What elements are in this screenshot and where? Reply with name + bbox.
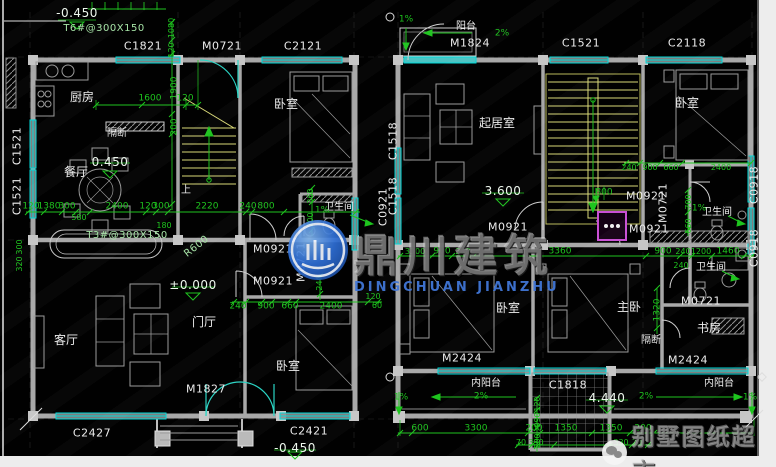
tag-label-5: C2118 (668, 38, 706, 49)
room-label-14: 卧室 (496, 302, 520, 314)
dim-label-2: 1080 (168, 18, 176, 38)
dim-label-45: 1320 (654, 299, 663, 322)
tag-label-26: C1818 (549, 380, 587, 391)
tag-label-3: M1824 (450, 38, 490, 49)
room-label-5: 客厅 (54, 334, 78, 346)
dim-label-40: 900 (654, 248, 671, 257)
room-label-0: 厨房 (70, 91, 94, 103)
tag-label-21: M1827 (186, 384, 226, 395)
tag-label-23: C2421 (290, 426, 328, 437)
dim-label-21: 660 (281, 303, 298, 312)
dim-label-37: 900 (433, 248, 450, 257)
room-label-6: 门厅 (192, 316, 216, 328)
dim-label-39: 3360 (549, 248, 572, 257)
room-label-11: 卧室 (675, 97, 699, 109)
top-dim-ticks (88, 2, 166, 10)
room-label-12: 卫生间 (702, 208, 732, 218)
elev-label-5: -0.450 (274, 442, 316, 454)
dim-label-51: 1% (394, 394, 408, 403)
dim-label-34: 660 (663, 164, 678, 172)
dim-label-8: 300 (58, 203, 75, 212)
floorplan-canvas: C1821M0721C2121M1824C1521C2118C1521C1521… (0, 0, 776, 467)
tag-label-20: M0721 (681, 296, 721, 307)
dim-label-58: 200 (634, 425, 651, 434)
dim-label-5: 200 (171, 118, 180, 135)
room-label-7: 卧室 (276, 360, 300, 372)
dim-label-7: 1380 (38, 203, 61, 212)
tag-label-10: C1518 (388, 177, 399, 215)
dim-label-65: 200 (534, 433, 542, 448)
dim-label-47: 660 (685, 218, 693, 233)
dim-label-19: 240 (229, 303, 246, 312)
room-label-18: 内阳台 (471, 379, 501, 389)
room-label-19: 内阳台 (704, 379, 734, 389)
dim-label-18: 320 (16, 256, 24, 271)
dim-label-9: 580 (71, 214, 86, 222)
tag-label-0: C1821 (124, 41, 162, 52)
room-label-13: 卫生间 (696, 263, 726, 273)
dim-label-27: 700 (307, 212, 315, 227)
dim-label-29: 1% (399, 16, 413, 25)
dim-label-26: 360 (307, 188, 315, 203)
tag-label-12: C0918 (749, 229, 760, 267)
tag-label-4: C1521 (562, 38, 600, 49)
column-blocks (28, 55, 756, 446)
dim-label-31: 800 (595, 189, 612, 198)
tag-label-19: M0721 (658, 183, 669, 223)
dim-label-15: 800 (257, 203, 274, 212)
tag-label-13: M0921 (253, 244, 293, 255)
dim-label-12: 300 (152, 203, 169, 212)
dim-label-38: 240 (455, 248, 470, 256)
dim-label-16: 180 (156, 222, 171, 230)
room-label-9: 阳台 (456, 22, 476, 32)
tag-label-18: M0921 (629, 224, 669, 235)
room-label-10: 起居室 (479, 117, 515, 129)
tag-label-9: C1518 (388, 122, 399, 160)
room-label-17: 隔断 (641, 336, 661, 346)
elev-label-1: 0.450 (92, 156, 129, 168)
dim-label-25: 240 (316, 275, 324, 290)
tag-label-11: C0918 (749, 166, 760, 204)
dim-label-23: 120 (365, 293, 380, 301)
elev-label-0: -0.450 (56, 7, 98, 19)
room-label-1: 隔断 (107, 129, 127, 139)
room-label-2: 餐厅 (64, 166, 88, 178)
dim-label-61: 330 (613, 439, 628, 447)
dim-label-4: 1900 (171, 77, 180, 100)
dim-label-10: 2400 (106, 203, 129, 212)
room-label-16: 书房 (697, 322, 721, 334)
tag-label-25: M2424 (668, 355, 708, 366)
dim-label-22: 2400 (320, 303, 343, 312)
dim-label-35: 2400 (711, 164, 731, 172)
dim-label-20: 900 (257, 303, 274, 312)
dim-label-50: 2% (639, 393, 653, 402)
dim-label-53: 600 (411, 425, 428, 434)
dim-label-0: 1600 (139, 95, 162, 104)
tag-label-1: M0721 (202, 41, 242, 52)
dim-label-14: 240 (239, 203, 256, 212)
dim-label-32: 240 (621, 164, 636, 172)
tag-label-15: M0721 (296, 242, 307, 282)
dim-label-24: 60 (372, 302, 382, 310)
dim-label-30: 2% (495, 30, 509, 39)
elev-label-2: ±0.000 (169, 279, 216, 291)
dim-label-52: 1% (743, 394, 757, 403)
elev-label-3: 3.600 (485, 185, 522, 197)
dim-label-13: 2220 (196, 203, 219, 212)
elev-label-4: 4.440 (589, 392, 626, 404)
dim-label-54: 3300 (465, 425, 488, 434)
dim-label-59: 70 (516, 439, 526, 447)
dim-label-3: 120 (168, 42, 176, 57)
tag-label-2: C2121 (284, 41, 322, 52)
shower-box (598, 212, 626, 240)
dim-label-49: 2% (474, 393, 488, 402)
note-label-0: T6#@300X150 (63, 24, 144, 34)
dim-label-44: 240 (673, 262, 688, 270)
tag-label-16: M0921 (488, 222, 528, 233)
tag-label-6: C1521 (12, 127, 23, 165)
dim-label-36: 3300 (405, 248, 425, 256)
dim-label-41: 240 (675, 248, 690, 256)
tag-label-7: C1521 (12, 177, 23, 215)
dim-label-64: 990 (534, 412, 542, 427)
dim-label-17: 300 (16, 239, 24, 254)
room-label-8: 上 (181, 186, 191, 196)
dim-label-42: 1200 (691, 248, 711, 256)
tag-label-24: M2424 (442, 353, 482, 364)
dim-label-57: 1350 (600, 425, 623, 434)
dim-label-62: 70 (632, 439, 642, 447)
dim-label-33: 900 (642, 164, 657, 172)
dim-label-48: 1% (692, 205, 706, 214)
room-label-3: 卧室 (274, 98, 298, 110)
room-label-15: 主卧 (617, 301, 641, 313)
note-label-1: T3#@300X150 (86, 231, 167, 241)
dim-label-28: 1% (315, 207, 329, 216)
dim-label-63: 120 (534, 396, 542, 411)
dim-label-43: 1460 (717, 248, 740, 257)
dim-label-56: 1350 (555, 425, 578, 434)
tag-label-22: C2427 (73, 428, 111, 439)
tag-label-14: M0921 (253, 276, 293, 287)
